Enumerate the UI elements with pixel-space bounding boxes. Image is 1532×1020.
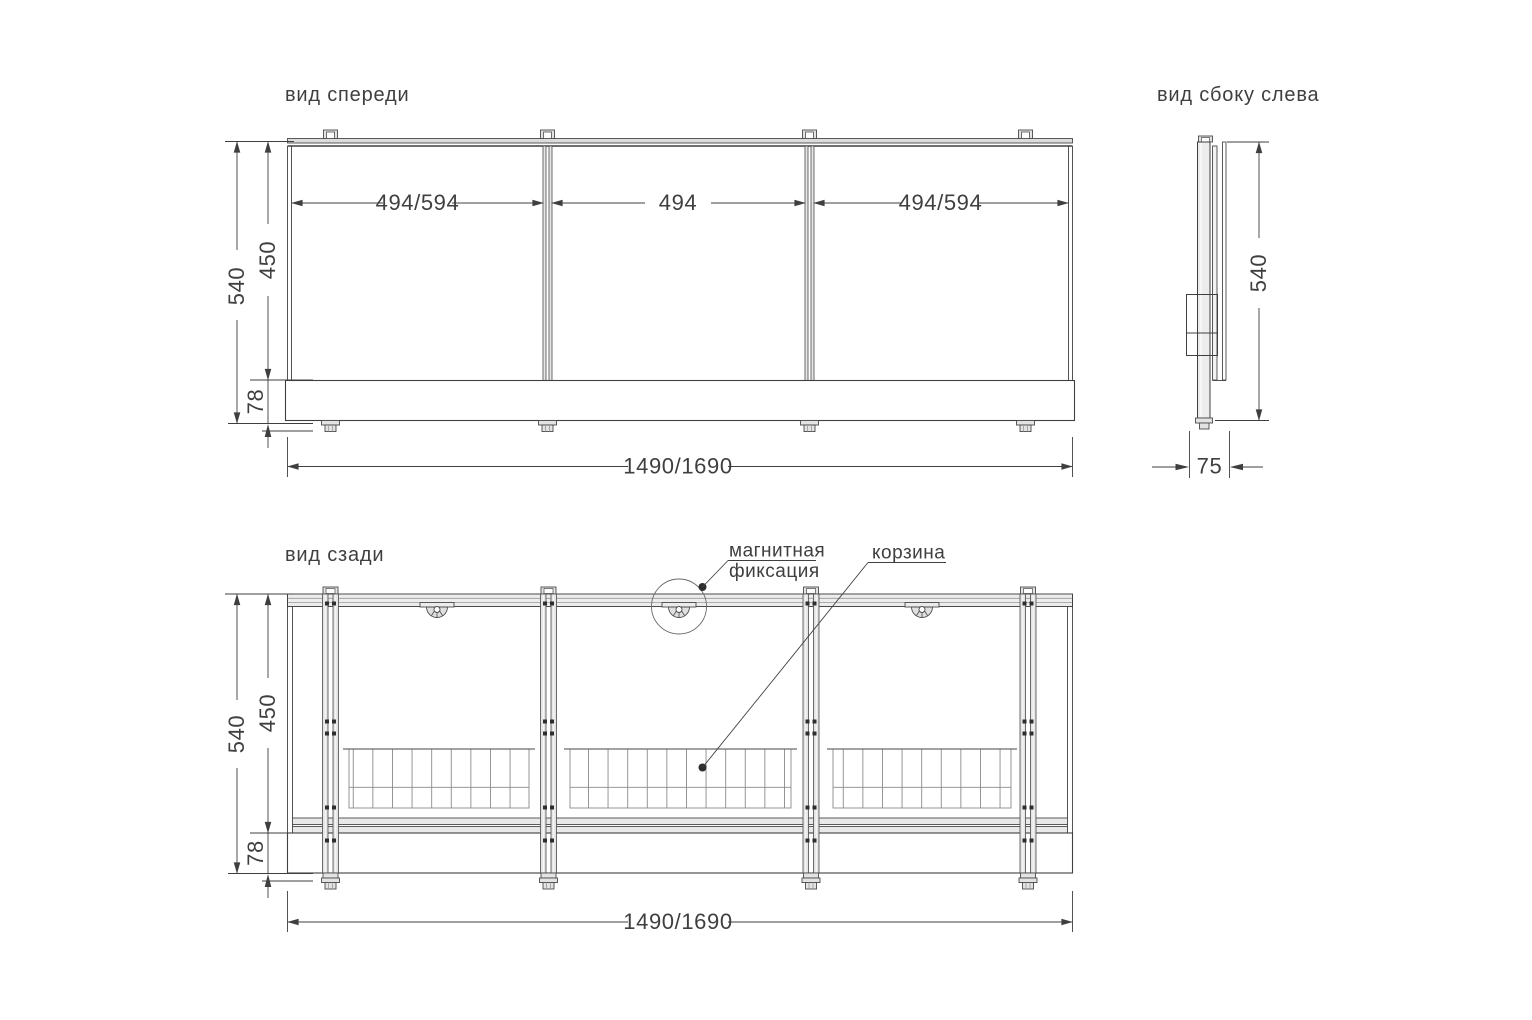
front-dim-section-right: 494/594 [899, 190, 983, 215]
rear-hanger-3 [905, 603, 939, 618]
side-frame-post [1198, 142, 1211, 418]
front-dim-height-glass: 450 [255, 241, 280, 280]
front-clip-4 [1019, 130, 1033, 139]
rear-foot-2 [540, 878, 558, 889]
front-foot-2 [539, 421, 557, 432]
front-plinth [286, 381, 1075, 421]
front-dim-plinth: 78 [243, 389, 268, 415]
rear-dim-height-glass: 450 [255, 694, 280, 733]
front-clip-1 [324, 130, 338, 139]
rear-panel-frame [288, 587, 1073, 889]
rear-dim-width-total: 1490/1690 [623, 909, 732, 934]
front-dim-height-total: 540 [224, 267, 249, 306]
front-dim-section-middle: 494 [659, 190, 698, 215]
rear-hanger-1 [420, 603, 454, 618]
side-view: вид сбоку слева 540 [1152, 84, 1320, 479]
rear-basket-1 [343, 749, 535, 808]
front-top-rail [288, 139, 1073, 144]
rear-view-title: вид сзади [285, 544, 384, 566]
side-dim-depth: 75 [1152, 431, 1263, 479]
rear-dim-width: 1490/1690 [288, 891, 1073, 934]
front-mullion-left [543, 146, 552, 381]
front-foot-4 [1017, 421, 1035, 432]
front-foot-1 [322, 421, 340, 432]
side-glass-edge [1223, 142, 1227, 380]
front-foot-3 [801, 421, 819, 432]
front-view-title: вид спереди [285, 84, 409, 106]
rear-view: вид сзади [224, 541, 1073, 935]
side-dim-depth: 75 [1197, 454, 1223, 479]
rear-foot-3 [802, 878, 820, 889]
side-foot [1200, 423, 1210, 429]
front-clip-3 [803, 130, 817, 139]
rear-dim-height-total: 540 [224, 715, 249, 754]
front-panel-frame [286, 130, 1075, 432]
side-profile [1187, 136, 1227, 429]
rear-basket-2 [564, 749, 797, 808]
magnet-label-line1: магнитная [729, 541, 825, 562]
front-dim-width: 1490/1690 [288, 437, 1073, 479]
front-view: вид спереди [224, 84, 1075, 479]
front-dim-section-left: 494/594 [376, 190, 460, 215]
basket-label: корзина [872, 543, 945, 564]
rear-plinth [288, 833, 1073, 873]
rear-basket-3 [827, 749, 1017, 808]
rear-callout-magnet: магнитная фиксация [652, 541, 826, 635]
technical-drawing: вид спереди [0, 0, 1532, 1020]
rear-dim-plinth: 78 [243, 840, 268, 866]
front-mullion-right [805, 146, 814, 381]
rear-foot-4 [1019, 878, 1037, 889]
side-panel-strip [1213, 146, 1218, 380]
front-clip-2 [541, 130, 555, 139]
magnet-label-line2: фиксация [729, 561, 820, 582]
rear-hanger-2 [662, 603, 696, 618]
front-dim-width-total: 1490/1690 [623, 454, 732, 479]
front-dim-sections: 494/594 494 494/594 [292, 190, 1069, 215]
side-view-title: вид сбоку слева [1157, 84, 1320, 106]
drawing-sheet: вид спереди [0, 0, 1532, 1020]
side-dim-height-total: 540 [1246, 254, 1271, 293]
rear-foot-1 [322, 878, 340, 889]
rear-bottom-rail [293, 818, 1068, 825]
